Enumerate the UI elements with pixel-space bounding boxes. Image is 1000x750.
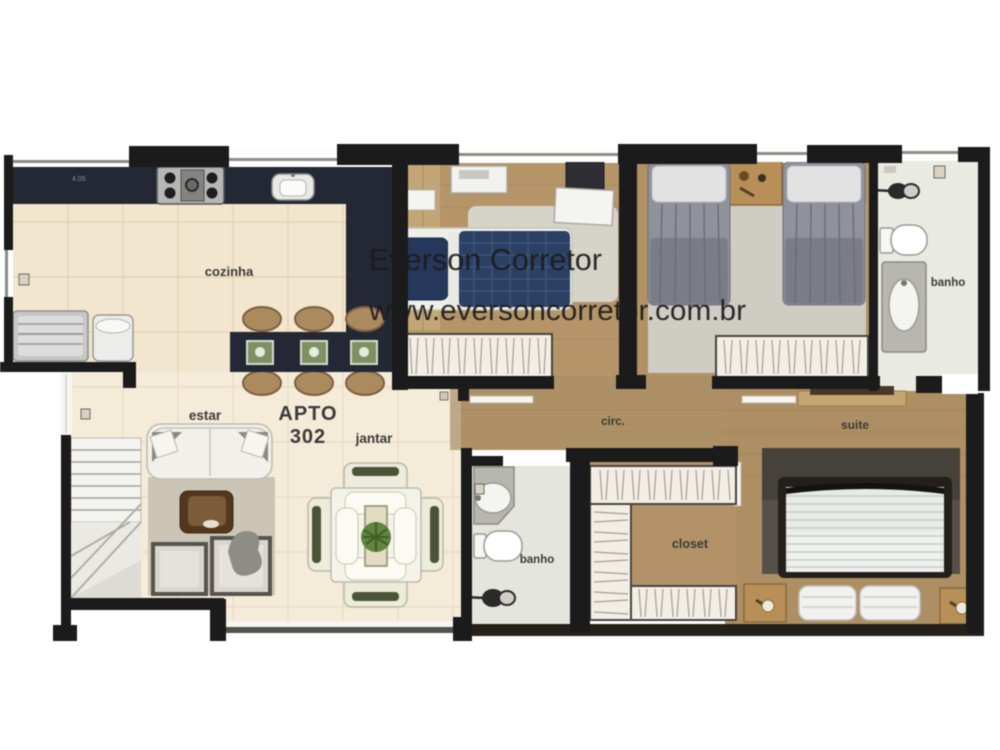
- svg-text:www.eversoncorretor.com.br: www.eversoncorretor.com.br: [368, 295, 746, 327]
- svg-text:jantar: jantar: [355, 431, 394, 446]
- svg-text:banho: banho: [931, 277, 966, 289]
- svg-text:APTO: APTO: [278, 403, 337, 425]
- svg-text:Everson Corretor: Everson Corretor: [369, 242, 602, 277]
- svg-text:circ.: circ.: [601, 416, 625, 428]
- svg-text:4.05: 4.05: [72, 176, 86, 183]
- svg-text:banho: banho: [520, 554, 555, 566]
- svg-text:closet: closet: [672, 537, 709, 551]
- svg-text:302: 302: [290, 426, 326, 448]
- svg-text:cozinha: cozinha: [205, 264, 254, 279]
- svg-text:estar: estar: [189, 408, 222, 423]
- svg-text:suite: suite: [841, 418, 869, 432]
